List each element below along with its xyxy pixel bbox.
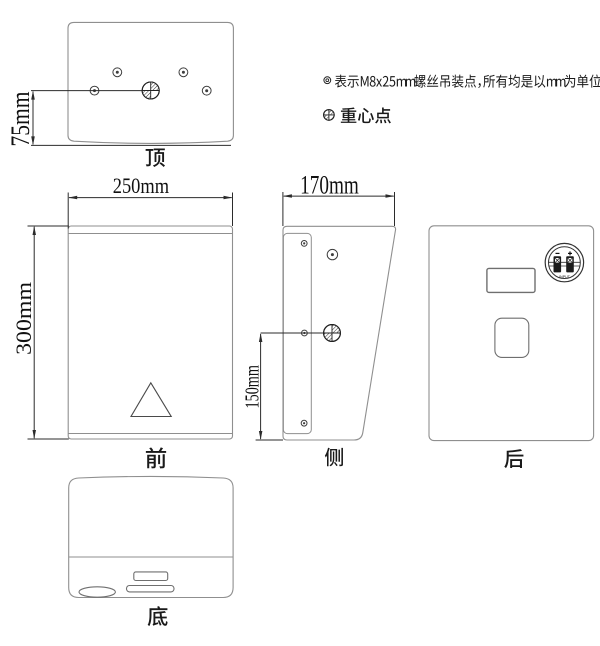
svg-text:300mm: 300mm — [11, 282, 36, 355]
svg-text:75mm: 75mm — [6, 92, 35, 147]
svg-text:150mm: 150mm — [241, 365, 263, 409]
svg-text:170mm: 170mm — [300, 169, 359, 199]
svg-text:250mm: 250mm — [113, 173, 170, 198]
svg-text:INPUT: INPUT — [559, 275, 571, 279]
